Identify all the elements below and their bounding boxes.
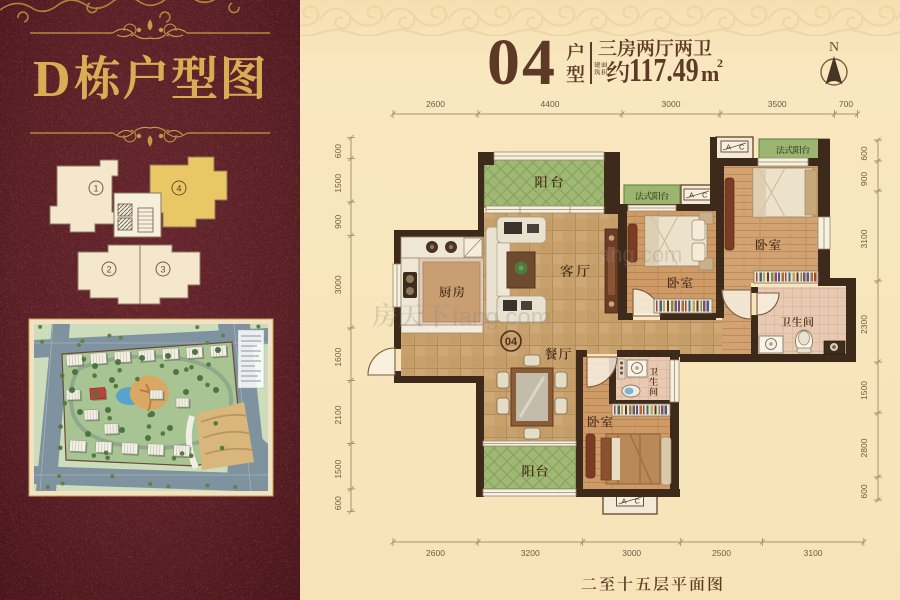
svg-text:2: 2 <box>106 265 111 275</box>
svg-text:C: C <box>702 191 708 200</box>
svg-text:2100: 2100 <box>333 405 343 424</box>
svg-text:2600: 2600 <box>426 548 445 558</box>
svg-text:N: N <box>829 40 839 55</box>
svg-text:ang.com: ang.com <box>598 242 682 267</box>
svg-text:3200: 3200 <box>521 548 540 558</box>
svg-text:1500: 1500 <box>859 381 869 400</box>
svg-text:1600: 1600 <box>333 347 343 366</box>
svg-text:D: D <box>33 51 71 108</box>
svg-text:2300: 2300 <box>859 315 869 334</box>
svg-text:2500: 2500 <box>712 548 731 558</box>
svg-text:900: 900 <box>859 172 869 186</box>
svg-text:3100: 3100 <box>859 229 869 248</box>
svg-text:600: 600 <box>859 484 869 498</box>
svg-text:3: 3 <box>160 265 165 275</box>
svg-text:3000: 3000 <box>333 275 343 294</box>
svg-text:4400: 4400 <box>541 99 560 109</box>
svg-text:A: A <box>726 143 731 152</box>
svg-text:A: A <box>689 191 694 200</box>
svg-text:4: 4 <box>176 184 181 194</box>
svg-text:1: 1 <box>93 184 98 194</box>
svg-text:3500: 3500 <box>768 99 787 109</box>
svg-text:1500: 1500 <box>333 459 343 478</box>
svg-text:600: 600 <box>333 144 343 158</box>
svg-text:3100: 3100 <box>804 548 823 558</box>
svg-text:C: C <box>739 143 745 152</box>
svg-text:600: 600 <box>859 146 869 160</box>
svg-text:900: 900 <box>333 214 343 228</box>
svg-text:A: A <box>622 497 627 506</box>
svg-text:04: 04 <box>505 336 518 348</box>
svg-text:700: 700 <box>839 99 853 109</box>
svg-text:117.49: 117.49 <box>629 51 699 89</box>
svg-text:2600: 2600 <box>426 99 445 109</box>
svg-text:2800: 2800 <box>859 438 869 457</box>
svg-text:600: 600 <box>333 496 343 510</box>
svg-text:3000: 3000 <box>662 99 681 109</box>
svg-text:fang.com: fang.com <box>452 304 551 331</box>
svg-text:2: 2 <box>717 56 723 70</box>
svg-text:3000: 3000 <box>622 548 641 558</box>
svg-text:04: 04 <box>487 26 557 99</box>
svg-text:1500: 1500 <box>333 174 343 193</box>
svg-text:C: C <box>635 497 641 506</box>
